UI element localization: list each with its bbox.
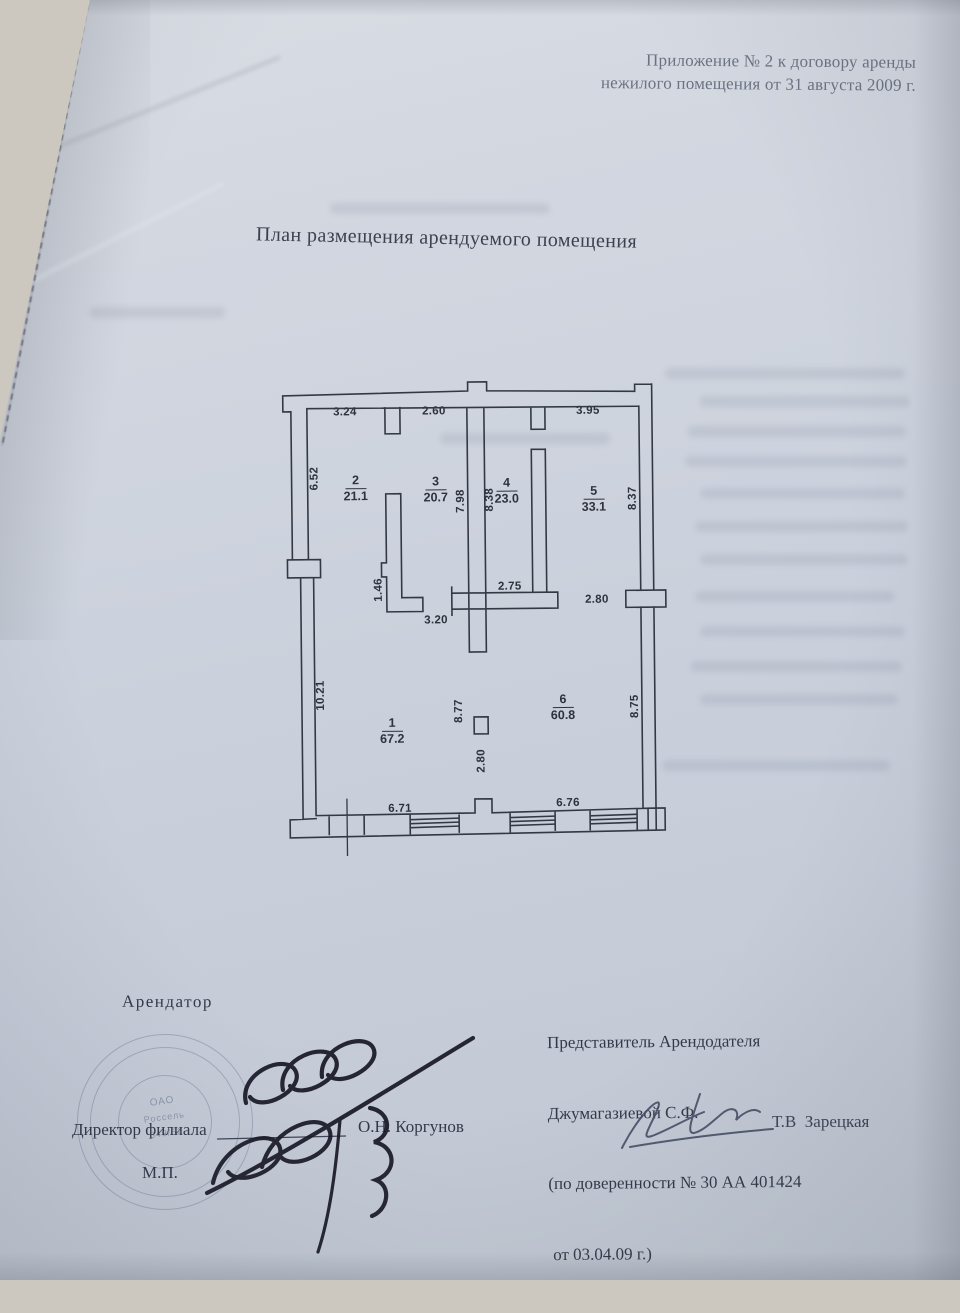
tenant-signature [207,1038,473,1252]
floor-plan-drawing [0,0,960,1280]
fold-mark [347,799,348,855]
photographed-document: { "document": { "header": { "line1": "Пр… [0,0,960,1280]
plan-walls [283,380,669,856]
paper-sheet: ОАО Россель 349/52 Приложение № 2 к дого… [0,0,960,1280]
landlord-signature [622,1094,773,1148]
